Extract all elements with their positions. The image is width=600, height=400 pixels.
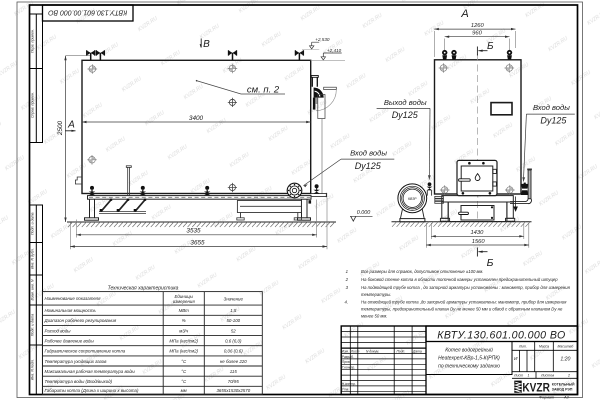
svg-text:измерения: измерения (173, 299, 196, 304)
svg-text:менее 50 мм.: менее 50 мм. (361, 314, 387, 319)
svg-text:Номинальная мощность: Номинальная мощность (45, 308, 97, 313)
svg-text:И: И (514, 356, 518, 362)
svg-text:2500: 2500 (57, 120, 64, 136)
svg-text:Листов: Листов (540, 374, 554, 378)
svg-text:Heatexpert-КВр-1,5-К(РПК): Heatexpert-КВр-1,5-К(РПК) (438, 356, 500, 362)
svg-text:Единицы: Единицы (174, 294, 193, 299)
svg-text:1260: 1260 (471, 23, 485, 29)
svg-text:Масса: Масса (539, 345, 549, 349)
svg-text:3655х1530х2570: 3655х1530х2570 (216, 388, 250, 393)
svg-text:1: 1 (346, 269, 348, 274)
svg-text:см. п. 2: см. п. 2 (247, 84, 280, 95)
svg-text:Изм.: Изм. (342, 349, 349, 353)
svg-text:На боковой стенке котла в обла: На боковой стенке котла в области топочн… (361, 277, 558, 282)
svg-text:4.: 4. (344, 300, 348, 305)
svg-text:Dy125: Dy125 (540, 115, 567, 125)
svg-text:Техническая характеристика: Техническая характеристика (108, 285, 179, 291)
svg-text:Вход воды: Вход воды (533, 103, 570, 112)
svg-text:Пров.: Пров. (342, 360, 351, 364)
svg-text:В: В (203, 39, 210, 50)
svg-text:°С: °С (181, 359, 187, 364)
svg-text:Подп. и дата: Подп. и дата (31, 212, 35, 235)
svg-text:КВТУ.130.601.00.000 ВО: КВТУ.130.601.00.000 ВО (48, 8, 128, 15)
svg-text:0,06 (0,6): 0,06 (0,6) (224, 349, 243, 354)
svg-text:ЗАВОД РЭП: ЗАВОД РЭП (552, 388, 573, 392)
svg-text:А: А (67, 120, 75, 131)
svg-text:Подп.: Подп. (397, 349, 406, 353)
svg-text:Дата: Дата (412, 349, 422, 353)
svg-text:мм: мм (181, 388, 187, 393)
svg-text:70/95: 70/95 (228, 379, 240, 384)
svg-text:КВЗР: КВЗР (408, 197, 417, 201)
svg-text:50-100: 50-100 (226, 318, 240, 323)
svg-text:Лист: Лист (350, 349, 360, 353)
svg-text:Инв. N дубл.: Инв. N дубл. (31, 248, 35, 269)
svg-text:Диапазон рабочего регулировани: Диапазон рабочего регулирования (44, 318, 117, 323)
svg-text:960: 960 (472, 31, 482, 37)
svg-text:Инв. N подл.: Инв. N подл. (31, 359, 35, 380)
svg-text:м3/ч: м3/ч (179, 328, 189, 333)
svg-text:Формат: Формат (539, 396, 554, 400)
svg-text:Масштаб: Масштаб (557, 345, 573, 349)
svg-text:На подводящей трубе котла ,: На подводящей трубе котла , до запорной … (361, 285, 571, 290)
svg-text:Dy125: Dy125 (355, 161, 382, 171)
svg-text:Рабочее давление воды: Рабочее давление воды (45, 339, 95, 344)
svg-text:по техническому заданию: по техническому заданию (438, 364, 500, 370)
svg-text:КОТЕЛЬНЫЙ: КОТЕЛЬНЫЙ (552, 382, 575, 386)
svg-text:Подп. и дата: Подп. и дата (31, 314, 35, 337)
svg-text:Взам. инв. N: Взам. инв. N (31, 279, 35, 300)
svg-text:52: 52 (231, 328, 236, 333)
svg-text:°С: °С (181, 369, 187, 374)
svg-text:Максимальная рабочая температу: Максимальная рабочая температура воды (45, 369, 136, 374)
svg-text:Габариты котла (Длина х ширина: Габариты котла (Длина х ширина х высота) (45, 388, 139, 393)
svg-text:Лит.: Лит. (518, 345, 527, 349)
svg-text:0.000: 0.000 (357, 210, 371, 216)
svg-text:Гидравлическое сопротивление к: Гидравлическое сопротивление котла (45, 349, 126, 354)
svg-text:115: 115 (230, 369, 238, 374)
svg-text:Н.контр.: Н.контр. (342, 382, 356, 386)
svg-text:температуры, предохранительный: температуры, предохранительный клапан Dу… (361, 307, 563, 312)
svg-text:Все размеры для справок, допус: Все размеры для справок, допустимое откл… (361, 269, 484, 274)
svg-text:1,5: 1,5 (230, 308, 237, 313)
svg-text:Котел водогрейный: Котел водогрейный (445, 347, 493, 354)
svg-text:не более 220: не более 220 (220, 359, 247, 364)
svg-text:3535: 3535 (186, 228, 201, 235)
svg-text:Температура воды (Вход/выход): Температура воды (Вход/выход) (45, 379, 113, 384)
svg-text:МВт: МВт (179, 308, 190, 313)
svg-text:+2,530: +2,530 (315, 37, 330, 42)
svg-text:0,6 (6,0): 0,6 (6,0) (225, 339, 242, 344)
svg-text:Т.контр.: Т.контр. (342, 366, 355, 370)
svg-text:Значение: Значение (224, 297, 244, 302)
svg-text:температуры.: температуры. (361, 292, 391, 297)
svg-text:%: % (182, 318, 186, 323)
svg-text:1560: 1560 (472, 239, 486, 245)
svg-text:Б: Б (487, 257, 494, 269)
svg-text:Температура уходящих газов: Температура уходящих газов (45, 359, 108, 364)
svg-text:Утв.: Утв. (342, 387, 350, 391)
svg-text:КВТУ.130.601.00.000 ВО: КВТУ.130.601.00.000 ВО (437, 330, 565, 342)
svg-text:KVZR: KVZR (522, 381, 550, 395)
svg-text:Перв. примен.: Перв. примен. (31, 29, 35, 53)
svg-text:Наименование показателя: Наименование показателя (45, 296, 102, 301)
svg-text:МПа (кгс/см2): МПа (кгс/см2) (169, 349, 198, 354)
svg-text:N докум.: N докум. (366, 349, 379, 353)
svg-text:Выход воды: Выход воды (384, 98, 427, 107)
svg-text:На отводящей трубе котла ,до з: На отводящей трубе котла ,до запорной ар… (361, 300, 567, 305)
svg-text:Б: Б (487, 41, 494, 52)
svg-text:2: 2 (567, 374, 570, 378)
svg-text:МПа (кгс/см2): МПа (кгс/см2) (169, 339, 198, 344)
svg-text:Разраб.: Разраб. (342, 355, 354, 359)
svg-text:Dy125: Dy125 (392, 110, 419, 120)
svg-text:1:20: 1:20 (560, 357, 570, 363)
svg-text:А: А (460, 8, 468, 20)
svg-text:Справ. примен.: Справ. примен. (31, 92, 35, 118)
svg-text:Лист: Лист (513, 374, 523, 378)
svg-text:1: 1 (528, 374, 530, 378)
svg-text:Расход воды: Расход воды (45, 328, 72, 333)
svg-text:Вход воды: Вход воды (350, 149, 387, 158)
svg-text:3655: 3655 (190, 239, 205, 246)
svg-text:°С: °С (181, 379, 187, 384)
svg-text:А3: А3 (563, 396, 570, 400)
svg-text:1430: 1430 (470, 230, 484, 236)
svg-text:3400: 3400 (189, 115, 204, 122)
svg-text:+2,410: +2,410 (327, 48, 342, 53)
